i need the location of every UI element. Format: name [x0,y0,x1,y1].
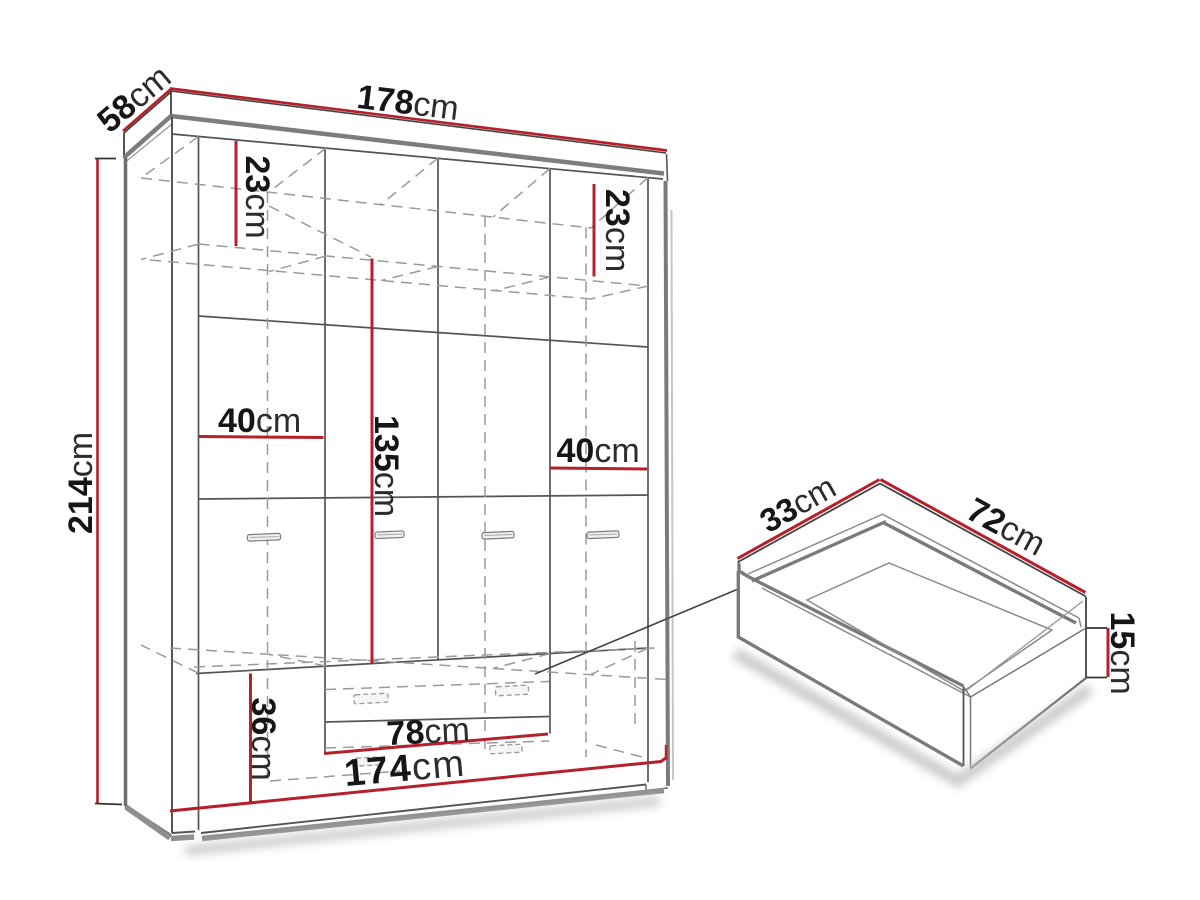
svg-text:23cm: 23cm [238,156,276,239]
svg-text:178cm: 178cm [355,78,461,128]
svg-text:214cm: 214cm [62,432,100,534]
svg-text:40cm: 40cm [218,402,301,440]
svg-text:58cm: 58cm [90,58,178,141]
svg-text:36cm: 36cm [244,698,282,781]
svg-text:40cm: 40cm [557,432,640,470]
svg-text:15cm: 15cm [1103,612,1141,695]
svg-text:23cm: 23cm [598,189,636,272]
svg-text:135cm: 135cm [367,415,405,517]
